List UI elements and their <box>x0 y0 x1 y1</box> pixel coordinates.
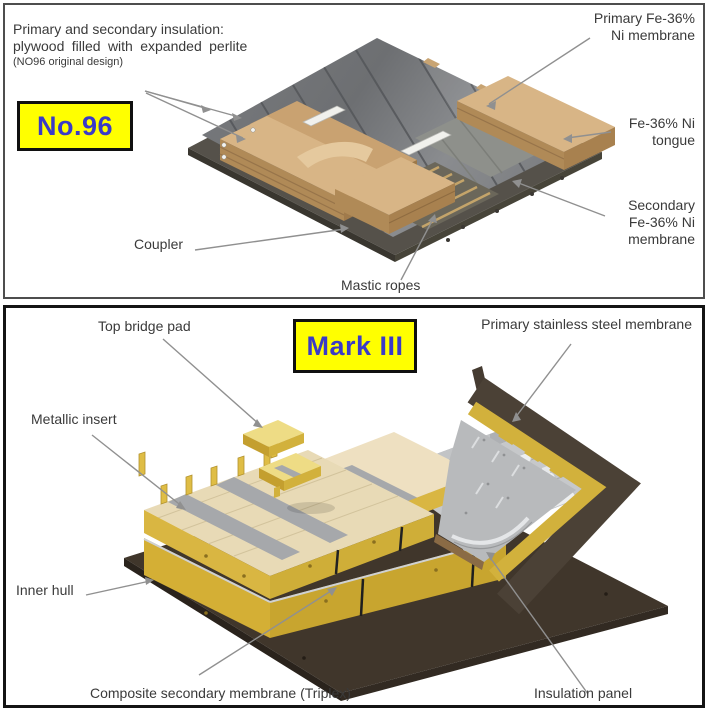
top-bridge-pad-label: Top bridge pad <box>98 318 191 335</box>
no96-panel: Primary and secondary insulation: plywoo… <box>3 3 705 299</box>
primary-stainless-membrane-label: Primary stainless steel membrane <box>481 316 692 333</box>
primary-fe36-membrane-line1: Primary Fe-36% <box>594 10 695 27</box>
insulation-label-line1: Primary and secondary insulation: <box>13 21 247 38</box>
secondary-fe36-line1: Secondary <box>628 197 695 214</box>
secondary-fe36-membrane-label: Secondary Fe-36% Ni membrane <box>628 197 695 248</box>
no96-badge: No.96 <box>17 101 133 151</box>
mark-iii-panel: Top bridge pad Mark III Primary stainles… <box>3 305 705 708</box>
primary-fe36-membrane-label: Primary Fe-36% Ni membrane <box>594 10 695 44</box>
inner-hull-label: Inner hull <box>16 582 74 599</box>
mark-iii-badge: Mark III <box>293 319 417 373</box>
fe36-tongue-line2: tongue <box>629 132 695 149</box>
coupler-label: Coupler <box>134 236 183 253</box>
primary-fe36-membrane-line2: Ni membrane <box>594 27 695 44</box>
fe36-tongue-line1: Fe-36% Ni <box>629 115 695 132</box>
secondary-fe36-line2: Fe-36% Ni <box>628 214 695 231</box>
secondary-fe36-line3: membrane <box>628 231 695 248</box>
figure-canvas: Primary and secondary insulation: plywoo… <box>0 0 708 711</box>
insulation-label-line2: plywood filled with expanded perlite <box>13 38 247 55</box>
composite-secondary-membrane-label: Composite secondary membrane (Triplex) <box>90 685 351 702</box>
fe36-tongue-label: Fe-36% Ni tongue <box>629 115 695 149</box>
insulation-panel-label: Insulation panel <box>534 685 632 702</box>
metallic-insert-label: Metallic insert <box>31 411 117 428</box>
mastic-ropes-label: Mastic ropes <box>341 277 420 294</box>
insulation-label: Primary and secondary insulation: plywoo… <box>13 21 247 70</box>
insulation-label-line3: (NO96 original design) <box>13 56 247 69</box>
